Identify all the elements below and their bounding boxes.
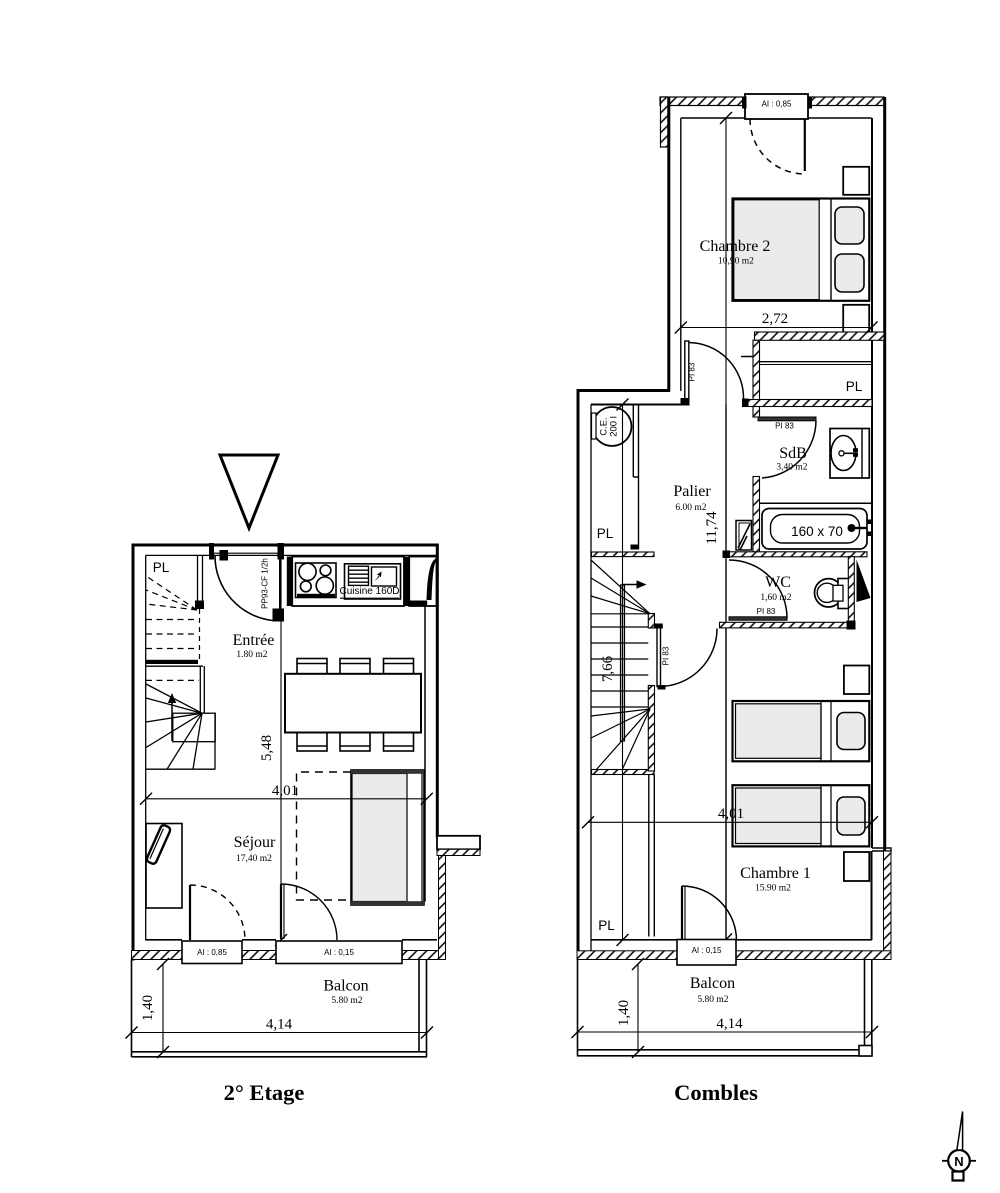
svg-text:Cuisine 160D: Cuisine 160D [339, 586, 399, 597]
svg-text:PL: PL [846, 379, 863, 394]
svg-text:11,74: 11,74 [704, 511, 720, 545]
svg-text:2° Etage: 2° Etage [224, 1080, 305, 1105]
svg-text:1,60 m2: 1,60 m2 [760, 593, 791, 603]
svg-text:1.80 m2: 1.80 m2 [236, 650, 267, 660]
svg-text:160 x 70: 160 x 70 [791, 524, 843, 539]
svg-text:Combles: Combles [674, 1080, 758, 1105]
svg-text:5.80 m2: 5.80 m2 [697, 995, 728, 1005]
svg-text:PL: PL [598, 918, 615, 933]
svg-text:PP93-CF 1/2h: PP93-CF 1/2h [261, 558, 270, 609]
svg-text:PL: PL [597, 526, 614, 541]
svg-text:AI : 0,85: AI : 0,85 [197, 948, 227, 957]
svg-text:5,48: 5,48 [259, 735, 275, 761]
svg-text:PI 83: PI 83 [757, 607, 776, 616]
svg-text:2,72: 2,72 [762, 311, 788, 327]
svg-text:Chambre 1: Chambre 1 [740, 865, 811, 882]
svg-text:Palier: Palier [673, 483, 711, 500]
svg-text:15.90 m2: 15.90 m2 [755, 884, 791, 894]
svg-text:10,90 m2: 10,90 m2 [718, 257, 754, 267]
svg-text:Entrée: Entrée [233, 632, 275, 649]
svg-text:4,14: 4,14 [716, 1016, 743, 1032]
svg-text:Séjour: Séjour [234, 834, 276, 851]
svg-text:1,40: 1,40 [616, 1000, 632, 1026]
svg-text:Balcon: Balcon [323, 978, 368, 995]
svg-text:200 l: 200 l [609, 416, 620, 437]
svg-text:PI 83: PI 83 [662, 646, 671, 665]
svg-text:17,40 m2: 17,40 m2 [236, 854, 272, 864]
svg-text:PL: PL [153, 560, 170, 575]
svg-text:PI 83: PI 83 [688, 362, 697, 381]
svg-text:1,40: 1,40 [140, 995, 156, 1021]
svg-text:N: N [954, 1154, 963, 1169]
svg-text:SdB: SdB [779, 445, 807, 462]
svg-text:PI 83: PI 83 [775, 422, 794, 431]
svg-text:Chambre 2: Chambre 2 [700, 238, 771, 255]
svg-text:5.80 m2: 5.80 m2 [331, 996, 362, 1006]
svg-text:AI : 0,15: AI : 0,15 [324, 948, 354, 957]
svg-text:AI : 0,15: AI : 0,15 [692, 946, 722, 955]
svg-text:6.00 m2: 6.00 m2 [675, 503, 706, 513]
svg-text:Balcon: Balcon [690, 975, 735, 992]
svg-text:7,66: 7,66 [600, 655, 616, 682]
svg-text:4,01: 4,01 [718, 806, 744, 822]
svg-text:AI : 0,85: AI : 0,85 [762, 100, 792, 109]
svg-text:4,14: 4,14 [266, 1017, 293, 1033]
svg-text:4,01: 4,01 [272, 783, 298, 799]
